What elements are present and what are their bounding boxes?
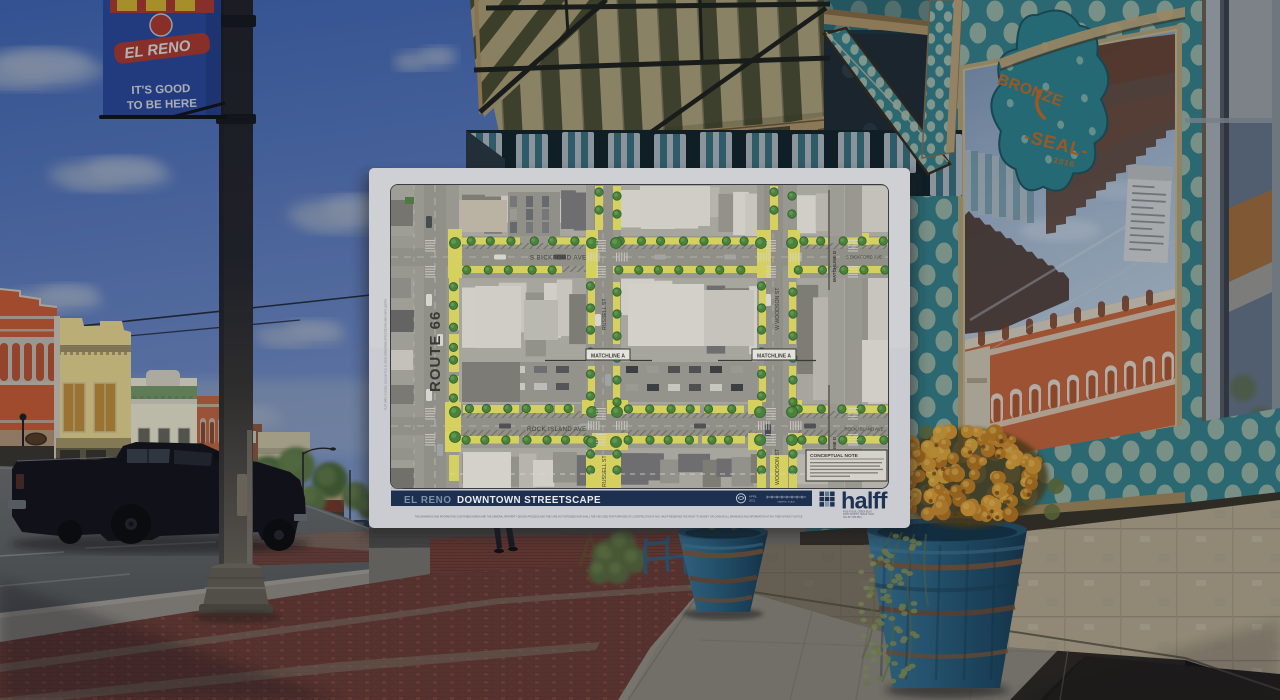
svg-text:4000 FOSSIL CREEK BLVD: 4000 FOSSIL CREEK BLVD: [843, 512, 872, 514]
svg-text:GRAPHIC SCALE: GRAPHIC SCALE: [777, 501, 795, 504]
svg-text:PLOT DATE: 4/12/2021 10:22 AM: PLOT DATE: 4/12/2021 10:22 AM FILE: EL R…: [385, 299, 388, 410]
svg-text:JOB 45820: JOB 45820: [391, 487, 404, 490]
svg-text:halff: halff: [841, 488, 888, 514]
svg-text:THE DRAWINGS AND INFORMATION C: THE DRAWINGS AND INFORMATION CONTAINED H…: [415, 516, 803, 519]
svg-text:2021: 2021: [749, 499, 756, 503]
svg-text:DOWNTOWN STREETSCAPE: DOWNTOWN STREETSCAPE: [457, 495, 601, 506]
svg-text:EL RENO: EL RENO: [404, 495, 452, 506]
svg-text:FORT WORTH, TEXAS 76137: FORT WORTH, TEXAS 76137: [843, 513, 875, 516]
svg-text:TEL 817.335.6511: TEL 817.335.6511: [843, 517, 862, 519]
